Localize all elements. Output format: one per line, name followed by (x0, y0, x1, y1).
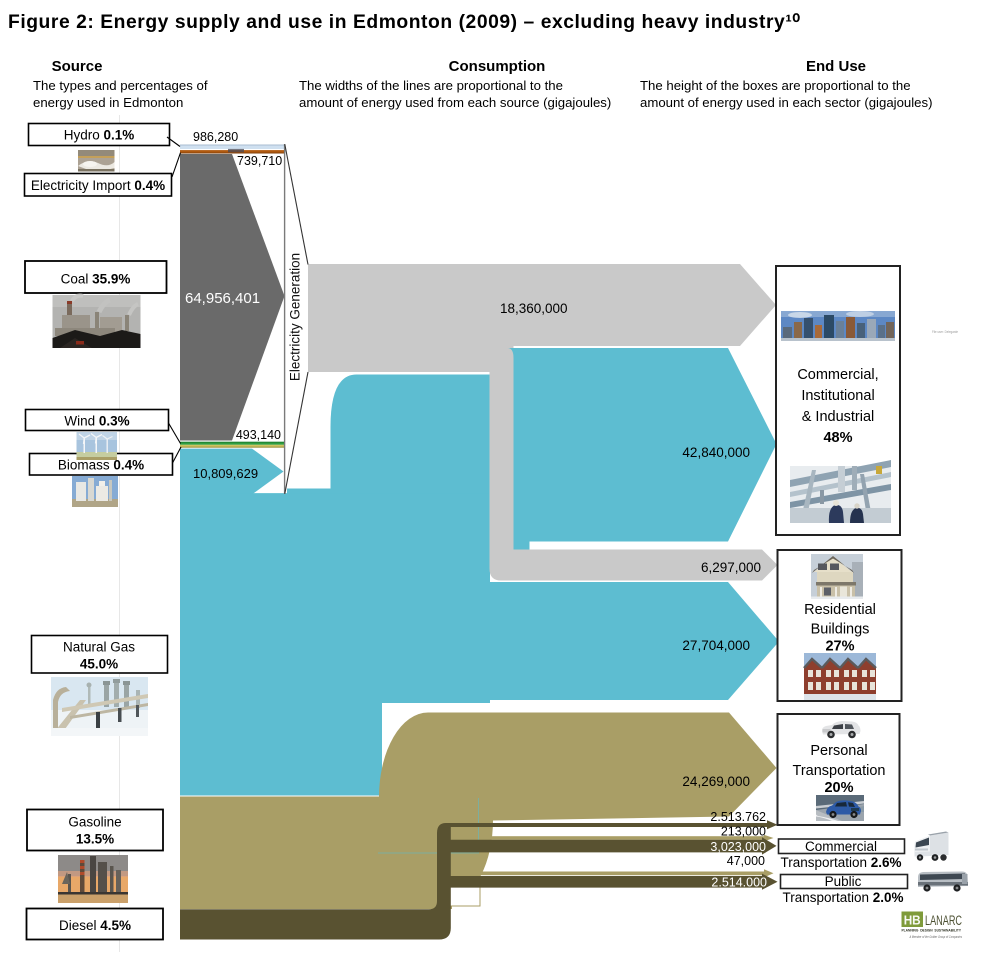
svg-text:986,280: 986,280 (193, 130, 238, 144)
svg-text:13.5%: 13.5% (76, 832, 114, 847)
svg-text:6,297,000: 6,297,000 (701, 560, 761, 575)
svg-text:45.0%: 45.0% (80, 657, 118, 672)
svg-text:27,704,000: 27,704,000 (682, 638, 750, 653)
svg-text:End Use: End Use (806, 58, 866, 75)
svg-text:Electricity Generation: Electricity Generation (288, 253, 303, 381)
svg-text:energy used in Edmonton: energy used in Edmonton (33, 95, 183, 110)
svg-text:Transportation: Transportation (793, 763, 886, 779)
svg-text:27%: 27% (825, 639, 854, 655)
svg-text:Electricity Import 0.4%: Electricity Import 0.4% (31, 178, 165, 193)
svg-text:amount of energy used from eac: amount of energy used from each source (… (299, 95, 611, 110)
svg-text:Figure 2: Energy supply and us: Figure 2: Energy supply and use in Edmon… (8, 12, 801, 33)
svg-text:Commercial: Commercial (805, 839, 877, 854)
svg-text:48%: 48% (823, 430, 852, 446)
svg-text:Natural Gas: Natural Gas (63, 640, 135, 655)
svg-text:42,840,000: 42,840,000 (682, 445, 750, 460)
svg-text:The height of the boxes are pr: The height of the boxes are proportional… (640, 78, 911, 93)
svg-text:A Member of the Golder Group o: A Member of the Golder Group of Companie… (909, 935, 963, 939)
svg-text:The widths of the lines are pr: The widths of the lines are proportional… (299, 78, 563, 93)
svg-text:& Industrial: & Industrial (802, 409, 875, 425)
svg-text:24,269,000: 24,269,000 (682, 774, 750, 789)
svg-text:47,000: 47,000 (727, 854, 765, 868)
svg-text:Transportation 2.6%: Transportation 2.6% (780, 855, 901, 870)
svg-text:Commercial,: Commercial, (797, 367, 878, 383)
svg-text:2.514.000: 2.514.000 (711, 876, 767, 890)
svg-text:Wind 0.3%: Wind 0.3% (64, 413, 129, 428)
svg-text:Source: Source (52, 58, 103, 75)
svg-text:Transportation 2.0%: Transportation 2.0% (782, 890, 903, 905)
svg-text:Residential: Residential (804, 602, 876, 618)
svg-text:File user: Delegarde: File user: Delegarde (932, 330, 958, 334)
svg-text:Institutional: Institutional (801, 388, 874, 404)
svg-text:10,809,629: 10,809,629 (193, 466, 258, 481)
svg-text:HB: HB (904, 914, 921, 928)
svg-text:The types and percentages of: The types and percentages of (33, 78, 208, 93)
svg-text:LANARC: LANARC (925, 913, 962, 928)
svg-text:18,360,000: 18,360,000 (500, 301, 568, 316)
svg-text:2.513.762: 2.513.762 (710, 810, 766, 824)
svg-text:PLANNING DESIGN SUSTAINABILI: PLANNING DESIGN SUSTAINABILITY (902, 928, 962, 932)
svg-text:20%: 20% (824, 780, 853, 796)
svg-text:Buildings: Buildings (811, 622, 870, 638)
svg-text:amount of energy used in each: amount of energy used in each sector (gi… (640, 95, 933, 110)
svg-text:Public: Public (825, 874, 862, 889)
svg-text:213,000: 213,000 (721, 824, 766, 838)
svg-text:Diesel 4.5%: Diesel 4.5% (59, 918, 131, 933)
svg-text:493,140: 493,140 (236, 428, 281, 442)
svg-text:64,956,401: 64,956,401 (185, 290, 260, 307)
svg-text:Consumption: Consumption (449, 58, 546, 75)
svg-text:3,023,000: 3,023,000 (710, 840, 766, 854)
svg-text:739,710: 739,710 (237, 154, 282, 168)
svg-text:Gasoline: Gasoline (68, 815, 121, 830)
svg-text:Hydro 0.1%: Hydro 0.1% (64, 128, 135, 143)
svg-text:Personal: Personal (810, 743, 867, 759)
svg-text:Coal 35.9%: Coal 35.9% (61, 272, 131, 287)
